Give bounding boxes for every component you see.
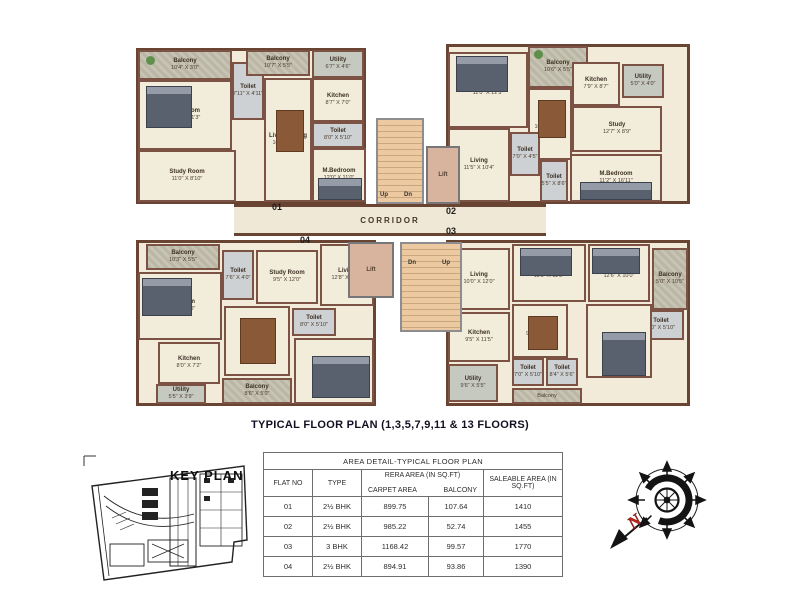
bed-furniture: [592, 248, 640, 274]
room-toilet: Toilet 7'6" X 4'0": [222, 250, 254, 300]
cell-carpet-area: 1168.42: [362, 537, 429, 557]
room-toilet: Toilet 8'0" X 5'10": [312, 122, 364, 148]
room-name-label: M.Bedroom: [600, 171, 633, 178]
bed-furniture: [602, 332, 646, 376]
room-name-label: Toilet: [230, 268, 246, 275]
room-name-label: Toilet: [546, 174, 562, 181]
column-header-saleable-area: SALEABLE AREA (IN SQ.FT): [484, 470, 563, 497]
room-name-label: Study Room: [269, 270, 304, 277]
room-dims-label: 6'7" X 4'6": [326, 64, 351, 71]
room-name-label: Utility: [465, 376, 482, 383]
room-balcony: Balcony 10'4" X 3'0": [138, 50, 232, 80]
cell-balcony: 107.64: [429, 497, 484, 517]
cell-saleable-area: 1390: [484, 557, 563, 577]
cell-balcony: 52.74: [429, 517, 484, 537]
bed-furniture: [520, 248, 572, 276]
cell-flat-no: 04: [264, 557, 313, 577]
room-utility: Utility 9'6" X 5'5": [448, 364, 498, 402]
room-name-label: Study: [609, 122, 626, 129]
room-dims-label: 8'7" X 7'0": [326, 100, 351, 107]
cell-flat-no: 02: [264, 517, 313, 537]
cell-saleable-area: 1770: [484, 537, 563, 557]
room-dims-label: 5'5" X 8'6": [542, 181, 567, 188]
area-detail-table: AREA DETAIL-TYPICAL FLOOR PLAN FLAT NO T…: [263, 452, 563, 577]
table-row: 04 2½ BHK 894.91 93.86 1390: [264, 557, 563, 577]
room-utility: Utility 6'7" X 4'6": [312, 50, 364, 78]
key-plan: KEY PLAN: [82, 452, 267, 597]
unit-number-04: 04: [300, 235, 310, 245]
room-toilet: Toilet 8'0" X 5'10": [292, 308, 336, 336]
plant-icon: [146, 56, 155, 65]
room-dims-label: 7'0" X 4'5": [513, 154, 538, 161]
room-name-label: Kitchen: [585, 77, 607, 84]
room-balcony: Balcony 10'3" X 5'5": [146, 244, 220, 270]
room-name-label: Toilet: [520, 365, 536, 372]
room-name-label: Utility: [173, 387, 190, 394]
table-title: AREA DETAIL-TYPICAL FLOOR PLAN: [264, 453, 563, 470]
corridor-label: CORRIDOR: [360, 216, 420, 225]
cell-type: 2½ BHK: [313, 517, 362, 537]
room-dims-label: 10'6" X 5'5": [544, 67, 572, 74]
dining-table-furniture: [240, 318, 276, 364]
cell-type: 2½ BHK: [313, 497, 362, 517]
room-name-label: Living: [470, 158, 488, 165]
room-name-label: Balcony: [266, 56, 289, 63]
cell-carpet-area: 899.75: [362, 497, 429, 517]
room-dims-label: 8'0" X 5'10": [300, 322, 328, 329]
room-dims-label: 12'6" X 10'0": [603, 273, 634, 280]
stairs-up-label: Up: [380, 192, 388, 198]
room-dims-label: 7'0" X 5'10": [514, 372, 542, 379]
room-toilet: Toilet 8'4" X 5'6": [546, 358, 578, 386]
room-dims-label: 10'3" X 5'5": [169, 257, 197, 264]
room-name-label: Kitchen: [327, 93, 349, 100]
staircase-lower: [400, 242, 462, 332]
lift-label: Lift: [366, 267, 375, 273]
room-dims-label: 5'5" X 3'9": [169, 394, 194, 401]
room-kitchen: Kitchen 7'9" X 8'7": [572, 62, 620, 106]
room-dims-label: 8'6" X 5'0": [245, 391, 270, 398]
room-study: Study 12'7" X 8'9": [572, 106, 662, 152]
cell-flat-no: 03: [264, 537, 313, 557]
column-header-flat-no: FLAT NO: [264, 470, 313, 497]
room-dims-label: 9'6" X 5'5": [461, 383, 486, 390]
room-name-label: M.Bedroom: [323, 168, 356, 175]
stairs-down-label: Dn: [408, 260, 416, 266]
room-dims-label: 7'9" X 8'7": [584, 84, 609, 91]
room-name-label: Balcony: [245, 384, 268, 391]
cell-saleable-area: 1410: [484, 497, 563, 517]
dining-table-furniture: [528, 316, 558, 350]
bed-furniture: [146, 86, 192, 128]
room-name-label: Kitchen: [178, 356, 200, 363]
bed-furniture: [142, 278, 192, 316]
lift-upper: Lift: [426, 146, 460, 204]
plant-icon: [534, 50, 543, 59]
rera-area-label: RERA AREA (IN SQ.FT): [364, 472, 481, 479]
room-name-label: Toilet: [330, 128, 346, 135]
north-label: N: [623, 510, 646, 534]
room-utility: Utility 5'5" X 3'9": [156, 384, 206, 404]
room-kitchen: Kitchen 8'7" X 7'0": [312, 78, 364, 122]
cell-carpet-area: 894.91: [362, 557, 429, 577]
cell-balcony: 93.86: [429, 557, 484, 577]
room-study: Study Room 9'5" X 12'0": [256, 250, 318, 304]
floor-plan-page: Balcony 10'4" X 3'0" Bed Room 10'4" X 11…: [0, 0, 800, 600]
room-name-label: Toilet: [554, 365, 570, 372]
column-header-rera-area: RERA AREA (IN SQ.FT) CARPET AREA BALCONY: [362, 470, 484, 497]
room-dims-label: 5'0" X 10'5": [656, 279, 684, 286]
room-dims-label: 10'7" X 5'5": [264, 63, 292, 70]
room-dims-label: 8'4" X 5'6": [550, 372, 575, 379]
room-balcony: Balcony: [512, 388, 582, 404]
unit-number-01: 01: [272, 202, 282, 212]
table-row: 01 2½ BHK 899.75 107.64 1410: [264, 497, 563, 517]
room-dims-label: 11'5" X 10'4": [464, 165, 495, 172]
room-name-label: Kitchen: [468, 330, 490, 337]
room-toilet: Toilet 5'5" X 8'6": [540, 160, 568, 202]
room-name-label: Toilet: [653, 318, 669, 325]
room-balcony: Balcony 5'0" X 10'5": [652, 248, 688, 310]
dining-table-furniture: [276, 110, 304, 152]
compass-rose: N: [605, 456, 720, 561]
room-name-label: Toilet: [517, 147, 533, 154]
room-name-label: Utility: [635, 74, 652, 81]
room-name-label: Toilet: [240, 84, 256, 91]
room-dims-label: 5'0" X 4'0": [631, 81, 656, 88]
column-header-carpet-area: CARPET AREA: [368, 487, 417, 494]
cell-balcony: 99.57: [429, 537, 484, 557]
room-name-label: Balcony: [546, 60, 569, 67]
lift-label: Lift: [438, 172, 447, 178]
room-dims-label: 10'4" X 3'0": [171, 65, 199, 72]
lift-lower: Lift: [348, 242, 394, 298]
compass-icon: N: [605, 456, 720, 561]
table-row: 03 3 BHK 1168.42 99.57 1770: [264, 537, 563, 557]
room-dims-label: 12'7" X 8'9": [603, 129, 631, 136]
dining-table-furniture: [538, 100, 566, 138]
page-title: TYPICAL FLOOR PLAN (1,3,5,7,9,11 & 13 FL…: [0, 419, 780, 431]
key-plan-label: KEY PLAN: [170, 468, 244, 483]
room-name-label: Balcony: [173, 58, 196, 65]
stairs-up-label: Up: [442, 260, 450, 266]
column-header-type: TYPE: [313, 470, 362, 497]
bed-furniture: [312, 356, 370, 398]
room-dims-label: 8'0" X 7'2": [177, 363, 202, 370]
room-dims-label: 10'0" X 12'0": [463, 279, 494, 286]
room-dims-label: 8'0" X 5'10": [324, 135, 352, 142]
table-row: 02 2½ BHK 985.22 52.74 1455: [264, 517, 563, 537]
cell-type: 2½ BHK: [313, 557, 362, 577]
room-toilet: Toilet 7'0" X 5'10": [512, 358, 544, 386]
stairs-down-label: Dn: [404, 192, 412, 198]
room-utility: Utility 5'0" X 4'0": [622, 64, 664, 98]
room-name-label: Balcony: [658, 272, 681, 279]
room-name-label: Balcony: [537, 393, 557, 400]
room-name-label: Balcony: [171, 250, 194, 257]
room-name-label: Utility: [330, 57, 347, 64]
cell-carpet-area: 985.22: [362, 517, 429, 537]
room-dims-label: 11'0" X 8'10": [172, 176, 203, 183]
bed-furniture: [456, 56, 508, 92]
room-toilet: Toilet 7'0" X 4'5": [510, 132, 540, 176]
bed-furniture: [318, 178, 362, 200]
cell-saleable-area: 1455: [484, 517, 563, 537]
cell-type: 3 BHK: [313, 537, 362, 557]
room-balcony: Balcony 8'6" X 5'0": [222, 378, 292, 404]
room-name-label: Study Room: [169, 169, 204, 176]
room-name-label: Toilet: [306, 315, 322, 322]
room-kitchen: Kitchen 8'0" X 7'2": [158, 342, 220, 384]
room-dims-label: 7'6" X 4'0": [226, 275, 251, 282]
room-balcony: Balcony 10'7" X 5'5": [246, 50, 310, 76]
room-dims-label: 7'11" X 4'11": [233, 91, 263, 98]
column-header-balcony: BALCONY: [444, 487, 477, 494]
room-dims-label: 9'5" X 12'0": [273, 277, 301, 284]
room-study: Study Room 11'0" X 8'10": [138, 150, 236, 202]
unit-number-03: 03: [446, 226, 456, 236]
room-dims-label: 9'5" X 11'5": [465, 337, 493, 344]
unit-number-02: 02: [446, 206, 456, 216]
cell-flat-no: 01: [264, 497, 313, 517]
bed-furniture: [580, 182, 652, 200]
room-name-label: Living: [470, 272, 488, 279]
